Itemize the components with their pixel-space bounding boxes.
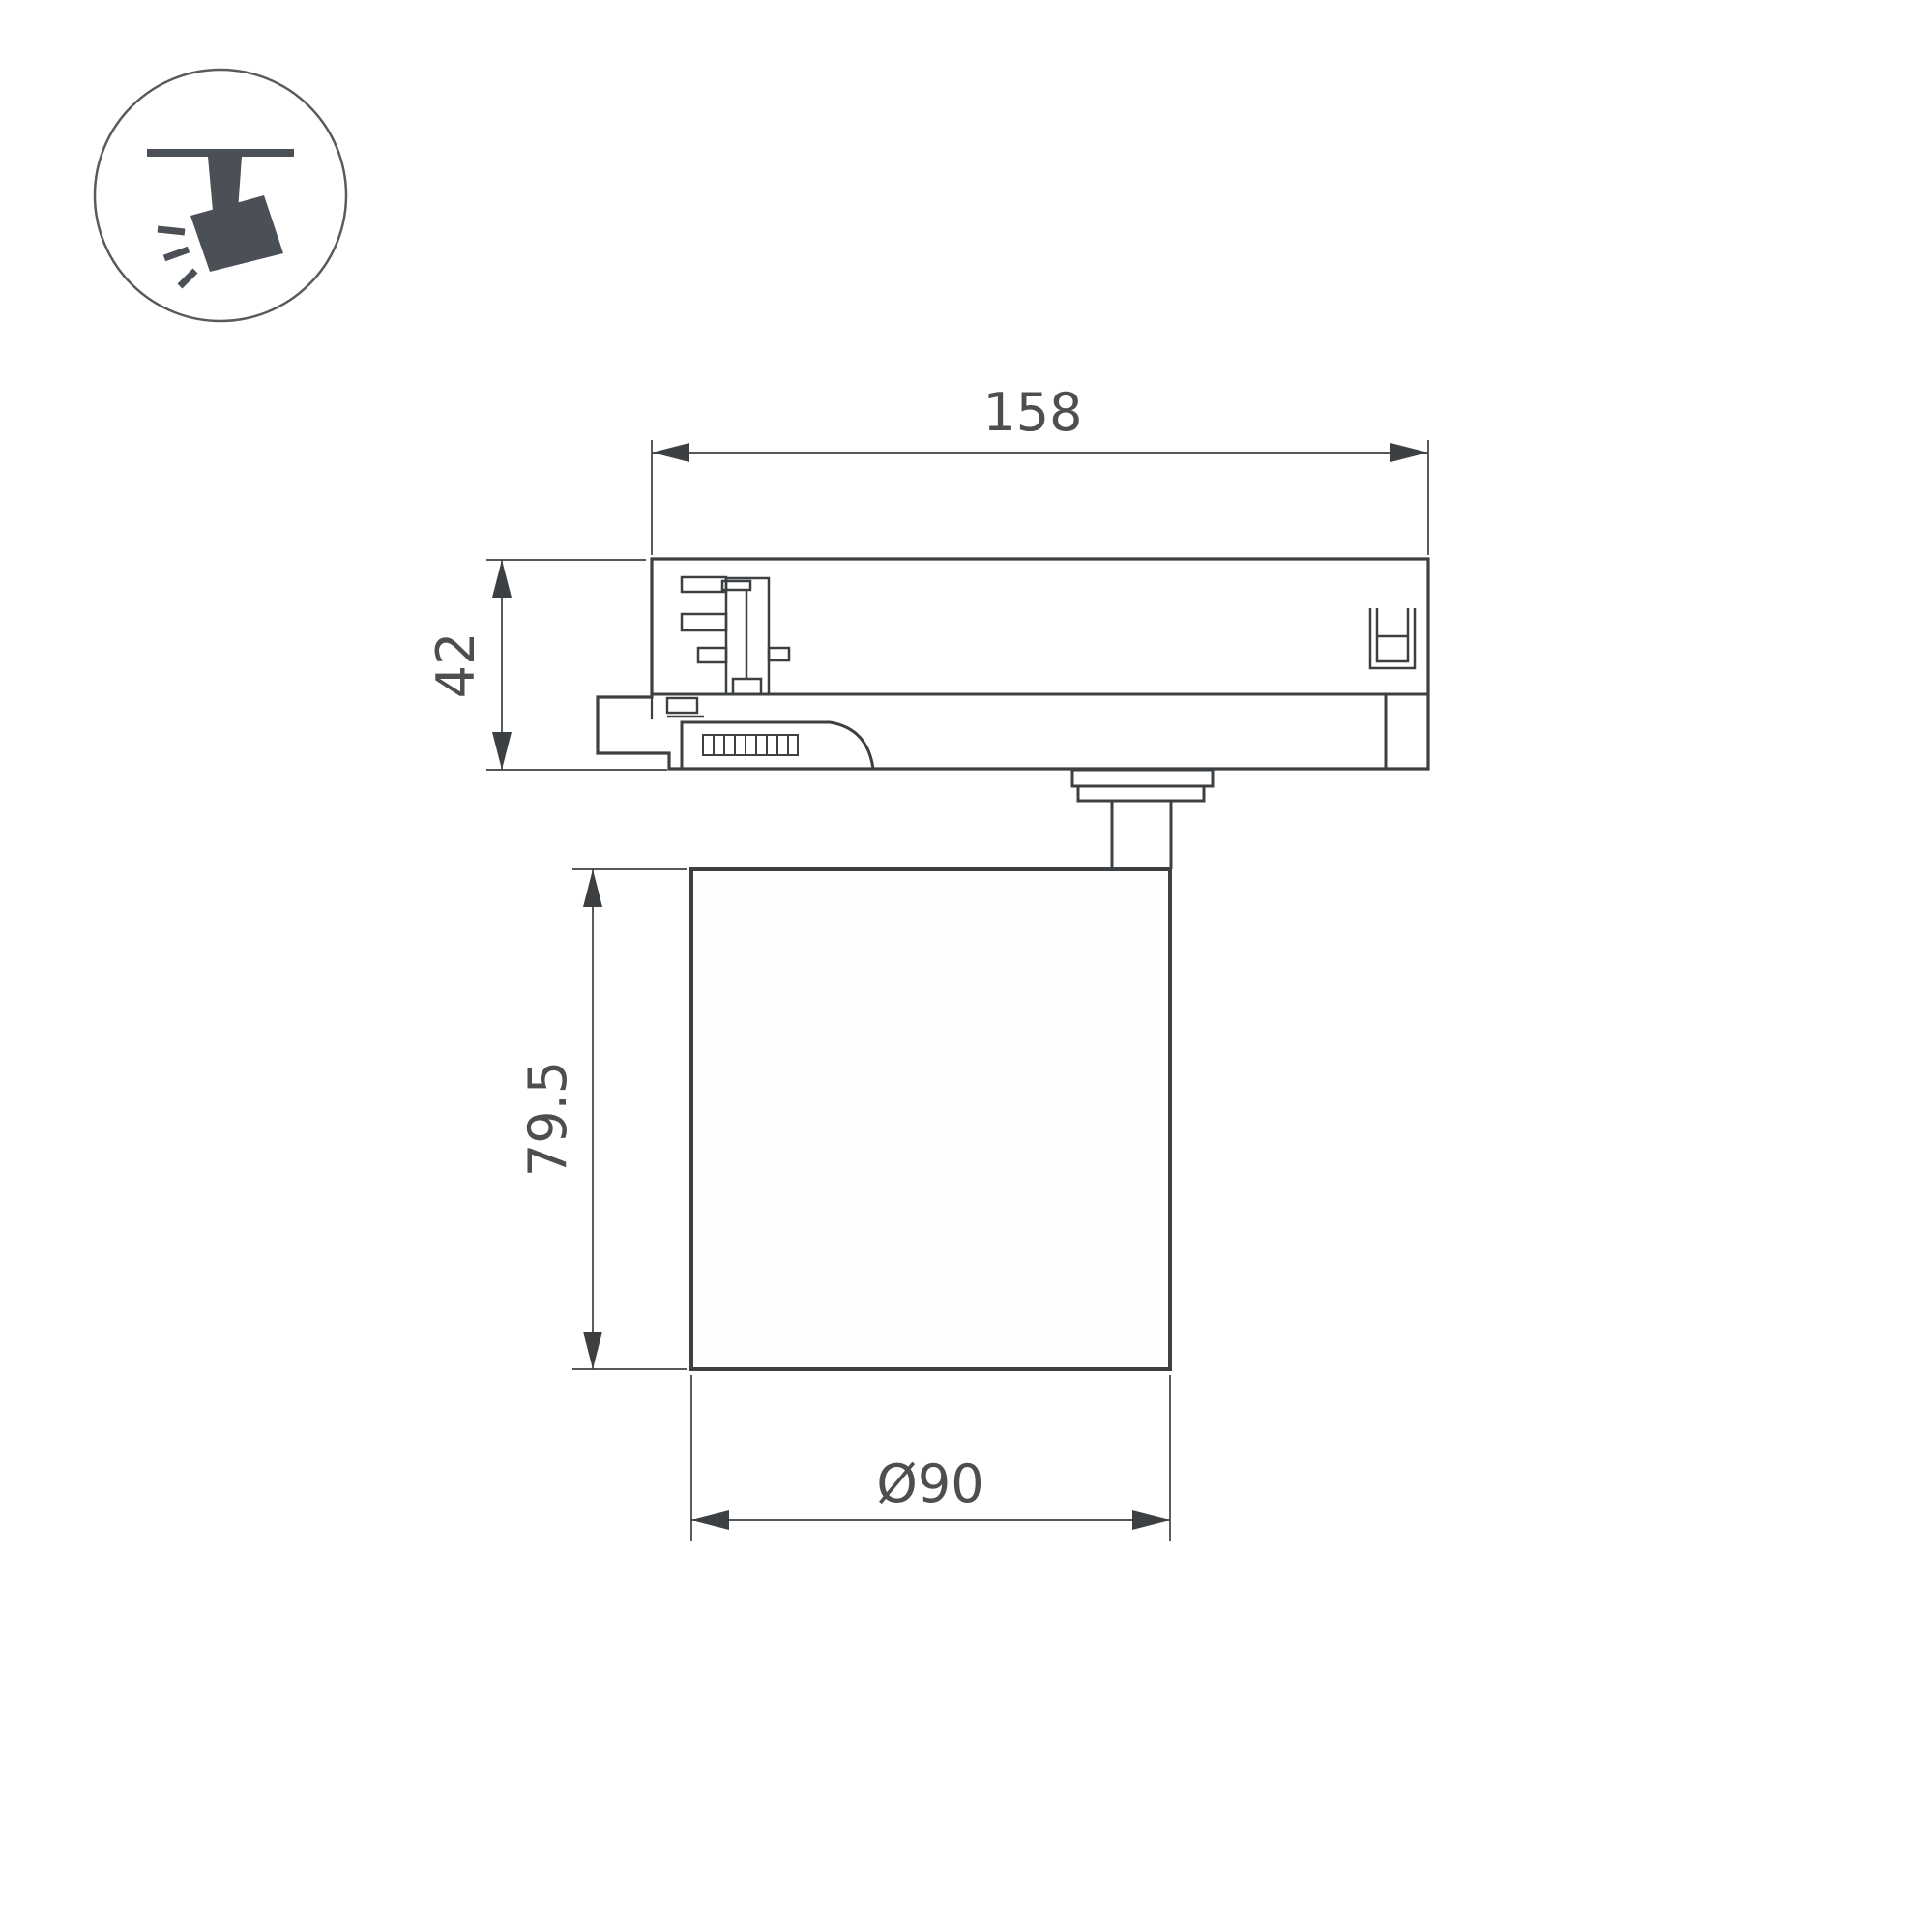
arrowhead-left (691, 1510, 729, 1530)
icon-ceiling-track (147, 149, 294, 157)
vent-frame (703, 735, 798, 755)
dimension-body-height: 79.5 (517, 869, 687, 1369)
arrowhead-right (1132, 1510, 1170, 1530)
lamp-body (691, 869, 1170, 1369)
dimension-adapter-height: 42 (425, 560, 667, 770)
dimension-body-diameter: Ø90 (691, 1375, 1170, 1541)
contact-foot (733, 679, 761, 694)
icon-spotlight-head (190, 195, 283, 272)
contact-prong-top (682, 577, 726, 592)
dimension-adapter-height-lines (486, 560, 667, 770)
drawing-canvas: 158 42 79.5 (0, 0, 1932, 1932)
icon-mount-stem (208, 157, 242, 211)
contact-prong-bottom (698, 648, 726, 662)
icon-light-rays (158, 229, 195, 286)
dimension-body-height-lines (572, 869, 687, 1369)
dimension-track-length-lines (652, 440, 1428, 555)
technical-drawing: 158 42 79.5 (0, 0, 1932, 1932)
latch-block (667, 698, 697, 713)
arrowhead-top (492, 560, 512, 598)
dimension-track-length: 158 (652, 382, 1428, 555)
dim-label-body-height: 79.5 (517, 1061, 578, 1177)
arrowhead-bottom (492, 732, 512, 770)
mount-step-lower (1078, 786, 1204, 801)
track-spotlight-icon (95, 70, 346, 321)
arrowhead-top (583, 869, 602, 907)
clip-inner (1377, 608, 1408, 661)
product-outline (598, 559, 1428, 1369)
contact-side-tab (769, 648, 789, 660)
contact-assembly (682, 577, 789, 694)
ribbed-vent (703, 735, 798, 755)
arrowhead-bottom (583, 1332, 602, 1369)
dim-label-adapter-height: 42 (425, 632, 486, 699)
contact-prong-middle (682, 614, 726, 630)
arrowhead-left (652, 443, 689, 462)
dim-label-track-length: 158 (982, 382, 1082, 443)
mount-step-upper (1072, 770, 1213, 786)
retaining-clip (1370, 608, 1415, 668)
dim-label-body-diameter: Ø90 (876, 1453, 983, 1514)
swivel-mount (1072, 770, 1213, 869)
arrowhead-right (1390, 443, 1428, 462)
